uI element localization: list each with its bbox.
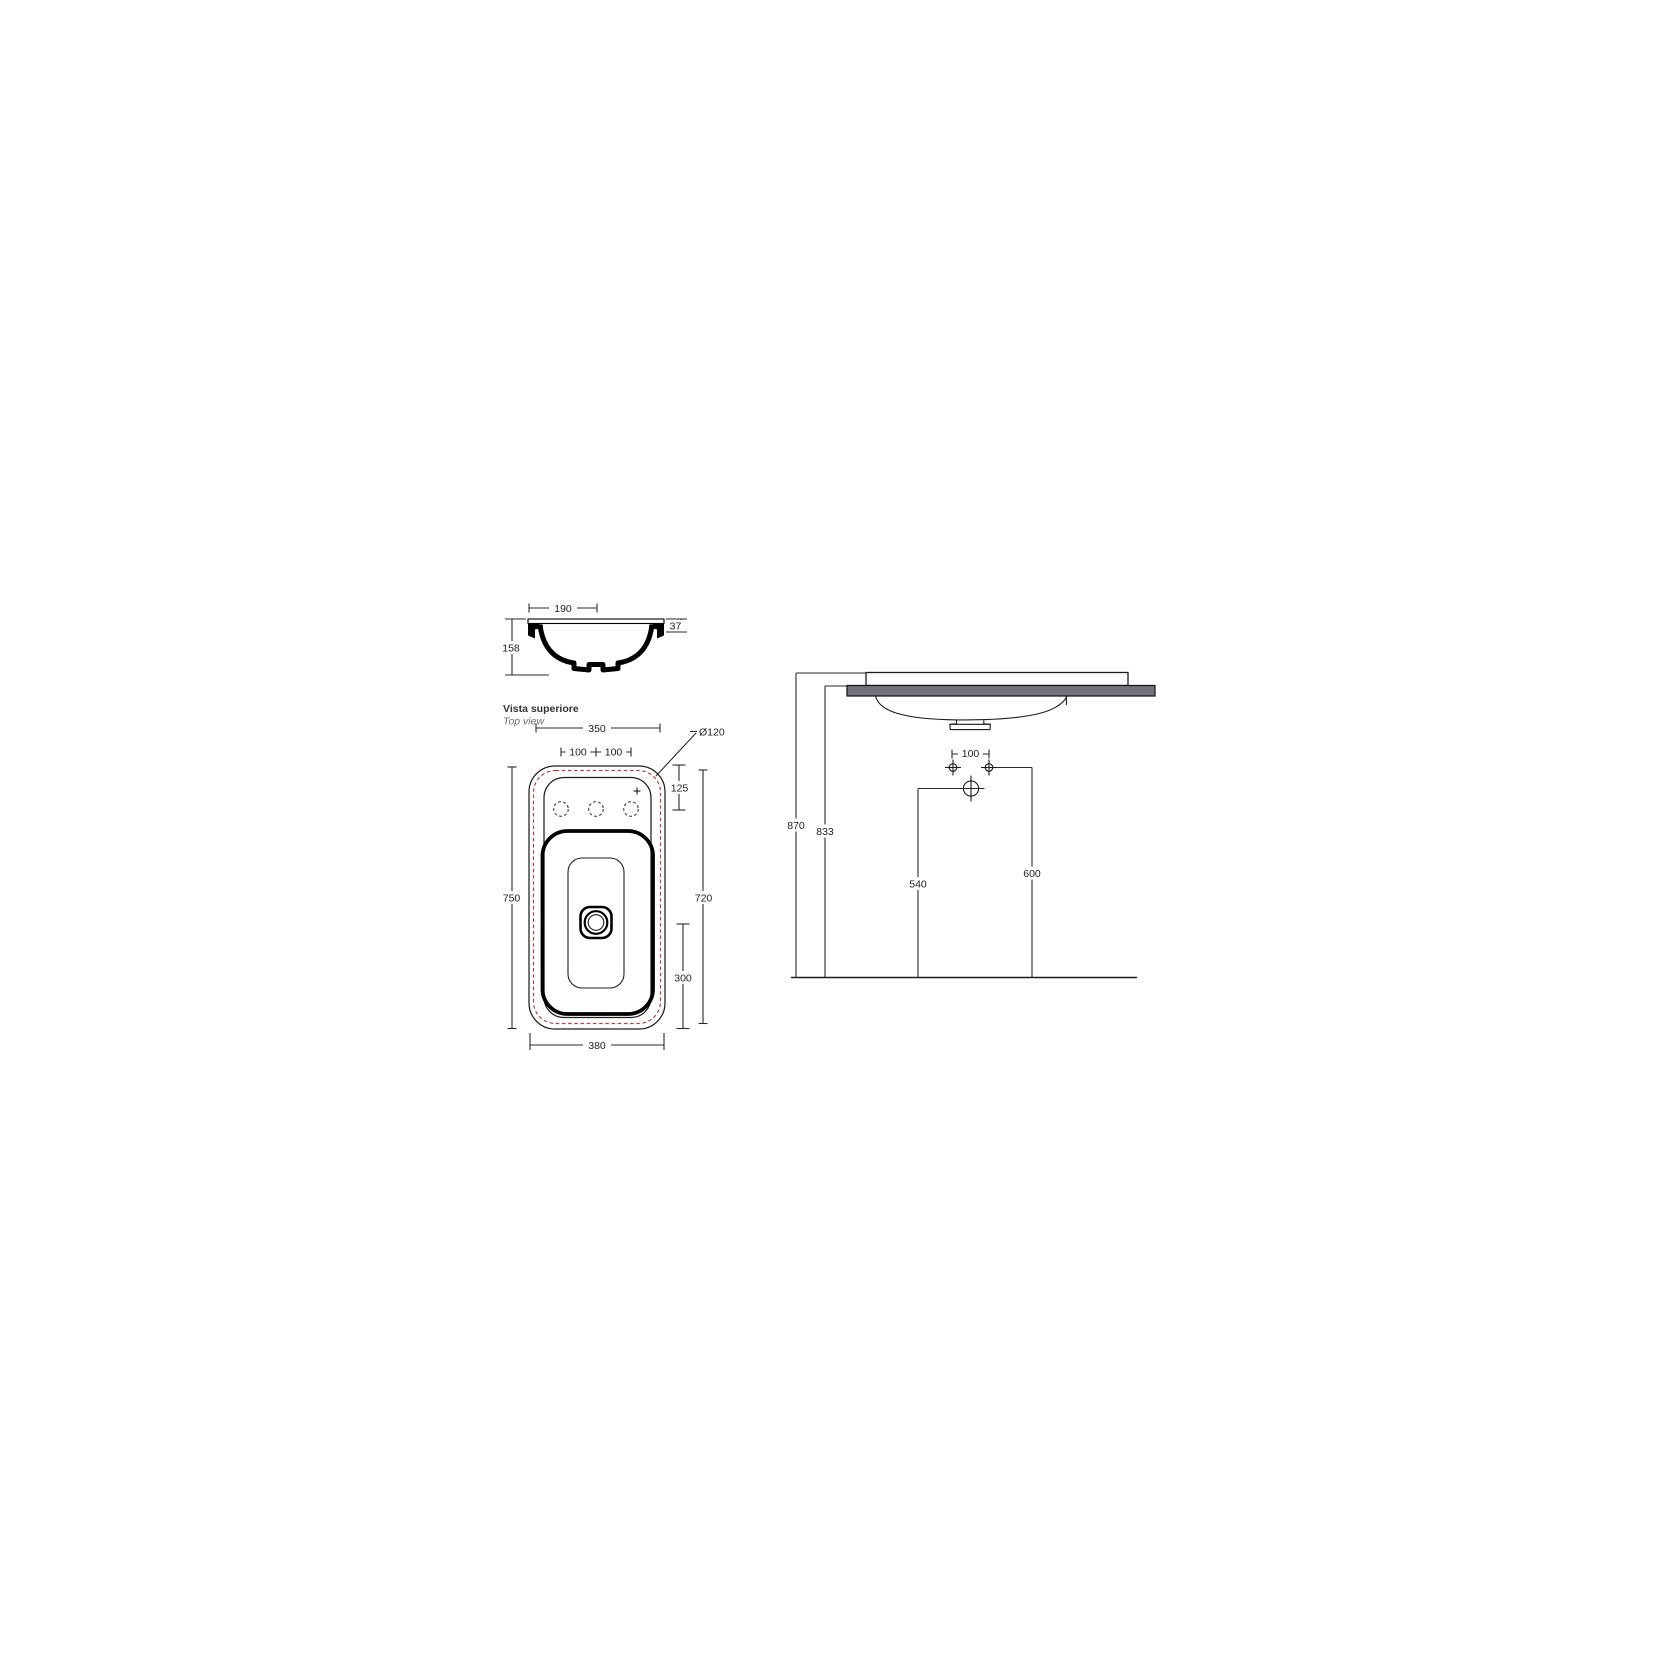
basin-top-outline [529,766,665,1029]
dim-label-540: 540 [909,879,927,891]
dim-label-125: 125 [671,783,689,795]
leader-line [656,733,696,776]
drain-side-view [950,720,991,729]
dim-fixing-spacing: 100 [952,747,989,761]
dim-overall-width: 380 [530,1033,664,1052]
dim-label-100-left: 100 [569,747,587,759]
section-bowl-wall [540,625,652,671]
dim-fixing-height: 600 [997,768,1048,978]
dim-cutout-depth: 720 [689,770,718,1024]
dim-drain-offset: 300 [669,924,697,1029]
dim-overall-depth: 750 [498,767,526,1029]
faucet-holes [554,788,641,817]
dim-label-37: 37 [670,621,682,633]
dim-cutout-corner-radius: Ø120 [656,727,725,777]
technical-drawing-svg: 190 37 158 Vista superiore Top view [0,0,1660,1660]
dim-drain-height: 540 [903,789,985,978]
bowl-flat-bottom [568,858,624,988]
fixing-hole-left [945,760,961,776]
dim-faucet-hole-spacing: 100 100 [561,746,631,759]
countertop [847,686,1155,697]
front-view: 870 833 100 [781,673,1155,978]
section-view: 190 37 158 [498,602,687,676]
dim-label-600: 600 [1023,868,1041,880]
section-rim-surface [528,619,664,624]
drain-top-view [581,907,612,938]
bowl-underside [876,696,1067,720]
cutout-dashed-line [534,771,661,1024]
drawing-sheet: 190 37 158 Vista superiore Top view [0,0,1660,1660]
drain-outlet [950,720,991,729]
dim-label-d120: Ø120 [699,727,725,739]
dim-label-750: 750 [503,893,521,905]
dim-label-350: 350 [588,723,606,735]
dim-counter-height: 833 [810,686,847,978]
basin-section-silhouette [528,619,664,670]
dim-label-720: 720 [695,893,713,905]
dim-label-100-front: 100 [962,748,980,760]
dim-label-300: 300 [674,973,692,985]
dim-section-rim-height: 37 [666,619,687,633]
dim-label-100-right: 100 [605,747,623,759]
dim-label-190: 190 [554,603,572,615]
top-view: Vista superiore Top view 350 100 100 Ø12… [498,703,725,1052]
top-view-subtitle: Top view [503,716,545,728]
faucet-hole [554,802,569,817]
reference-cross-icon [634,788,641,795]
faucet-hole [624,802,639,817]
fixing-hole-right [981,760,997,776]
dim-section-top-width: 190 [529,602,597,616]
basin-rim-side [866,673,1128,686]
top-view-title: Vista superiore [503,703,579,715]
outer-edge [529,766,665,1029]
dim-holes-offset: 125 [666,765,693,810]
drain-hole [588,915,604,931]
dim-label-833: 833 [816,826,834,838]
dim-cutout-width: 350 [536,722,660,736]
rim-inner-edge [544,778,651,1018]
dim-label-380: 380 [588,1040,606,1052]
faucet-hole [589,802,604,817]
dim-label-870: 870 [787,820,805,832]
dim-label-158: 158 [502,643,520,655]
